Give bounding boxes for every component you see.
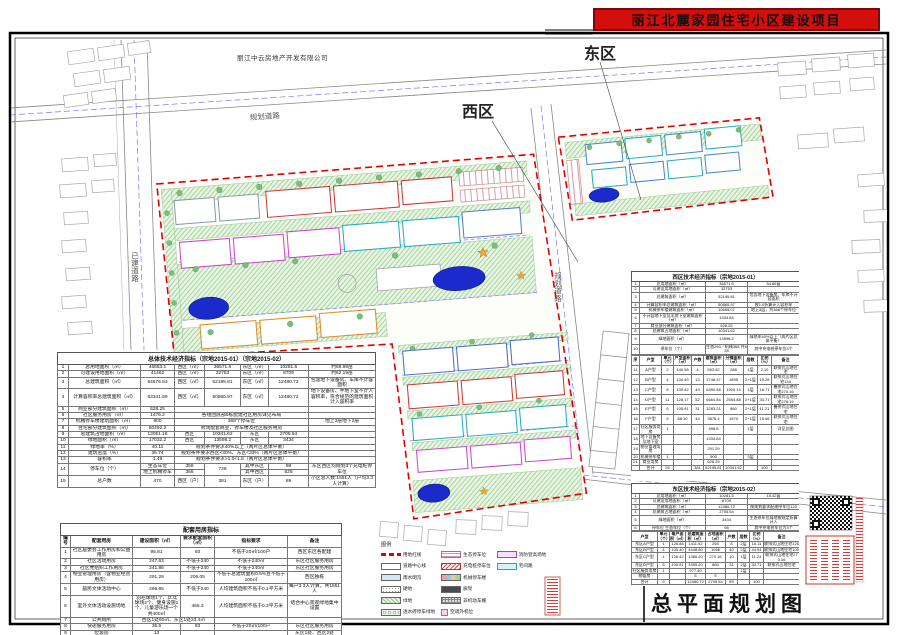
table-cell: 总户数 xyxy=(69,476,141,488)
table-cell: 10 xyxy=(632,344,640,354)
table-cell: 东区（㎡） xyxy=(241,389,269,406)
table-cell: 44.94 xyxy=(750,547,764,552)
table-cell: 东区（㎡） xyxy=(241,377,269,389)
table-cell: 15.46 xyxy=(758,415,772,425)
green-swatch xyxy=(381,597,401,604)
table-cell: 291.29 xyxy=(133,572,181,584)
table-cell: 105.40 xyxy=(670,547,686,552)
table-cell: 1895 xyxy=(724,375,744,385)
table-cell: 绿地率40%以上（两片区总体平衡） xyxy=(748,334,800,344)
west-table-title: 西区技术经济指标（宗地2015-01） xyxy=(632,272,800,282)
table-cell: 按规划要求配建停车位125 xyxy=(748,504,800,509)
table-row: 3总建筑面积（㎡）64676.53西区（㎡）52195.81东区（㎡）12480… xyxy=(58,377,376,389)
east-district xyxy=(558,117,773,221)
table-cell: 东区（㎡） xyxy=(241,371,269,377)
table-cell: 3283.21 xyxy=(704,405,724,415)
table-cell: 1 xyxy=(662,425,674,435)
table-cell: 单元（个） xyxy=(658,532,670,542)
table-cell xyxy=(748,313,800,323)
table-cell: 563.92 xyxy=(704,365,724,375)
table-cell xyxy=(662,435,674,445)
table-cell: 1层 xyxy=(744,385,758,395)
table-cell: 6390.58 xyxy=(704,385,724,395)
table-cell: 东区（㎡） xyxy=(241,365,269,371)
table-row: 3社区党组织工作用房241.86不低于240不低于240㎡东区社区服务用房 xyxy=(61,565,342,571)
table-cell: 12480.72 xyxy=(269,377,309,389)
table-cell: 88.10 xyxy=(674,415,692,425)
table-cell: 18 xyxy=(632,435,640,445)
table-cell: 3434 xyxy=(706,515,748,525)
table-cell xyxy=(632,465,640,470)
table-cell: 不低于240 xyxy=(181,583,215,595)
table-row: 9绿地面积（㎡）13598.2绿地率40%以上（两片区总体平衡） xyxy=(632,334,800,344)
legend-label: 宅间路 xyxy=(519,563,533,569)
table-row: 19物业管理用房291.29 xyxy=(632,445,800,455)
table-cell: 户型 xyxy=(640,355,662,365)
table-cell: 其中充电桩停车位3个 xyxy=(748,344,800,354)
table-cell xyxy=(674,465,692,470)
table-cell: 联排式山地住宅278.19 xyxy=(772,395,800,405)
table-cell xyxy=(674,425,692,435)
table-cell: 6 xyxy=(662,405,674,415)
table-cell xyxy=(692,445,704,455)
project-title-bar: 丽江北麓家园住宅小区建设项目 xyxy=(593,8,880,31)
table-cell: 西区（㎡） xyxy=(175,377,205,389)
legend-label: 生态停车位 xyxy=(463,552,486,558)
table-row: 15E户型6105.91313283.218802+1层11.21叠拼式山地住宅 xyxy=(632,405,800,415)
table-cell: 分摊面积（㎡） xyxy=(724,355,744,365)
support-table-title: 配套用房指标 xyxy=(61,524,342,536)
table-cell: 东区（户） xyxy=(241,476,269,488)
planned-road-label: 规划道路 xyxy=(249,110,280,122)
table-cell: 465.3 xyxy=(181,595,215,617)
legend-label: 透水砖停车绿地 xyxy=(403,609,435,615)
table-cell: 296.65 xyxy=(133,583,181,595)
table-cell: 95.81 xyxy=(133,547,181,559)
legend-label: 绿地 xyxy=(403,598,412,604)
table-row: 12B户型4134.49131748.3718952+1层15.28联排式山地住… xyxy=(632,375,800,385)
table-cell: 1366.20 xyxy=(686,553,706,563)
table-cell: 东区C户型 xyxy=(632,553,658,563)
legend-label: 机械停车楼 xyxy=(463,575,486,581)
legend-label: 硬地 xyxy=(403,586,412,592)
table-cell: 东区D户型 xyxy=(632,563,658,568)
table-cell: 10341.62 xyxy=(724,465,744,470)
west-district-table: 西区技术经济指标（宗地2015-01） 1总用地面积（㎡）36571.654.8… xyxy=(631,271,799,481)
table-cell: 东区西区均规划3个充电桩停车位 xyxy=(309,463,376,476)
table-cell: 联排式山地住宅126 xyxy=(764,542,800,547)
support-facilities-table: 配套用房指标 编号配套用房建设面积（㎡）要求配套面积（㎡）指标要求备注1社区居委… xyxy=(60,523,341,635)
table-cell: 层数 xyxy=(738,532,750,542)
table-cell: 4448.80 xyxy=(686,547,706,552)
table-cell: F户型 xyxy=(640,415,662,425)
table-cell xyxy=(744,465,758,470)
table-cell: 2554.88 xyxy=(724,395,744,405)
table-cell: 50860.97 xyxy=(205,389,241,406)
table-cell: 西区（㎡） xyxy=(175,389,205,406)
table-cell: 不计容地下室及半地下室建筑面积（㎡） xyxy=(640,313,706,323)
developer-label: 丽江中云房地产开发有限公司 xyxy=(237,53,328,62)
table-cell: 4 xyxy=(662,375,674,385)
table-cell: 绿地面积（㎡） xyxy=(640,515,706,525)
table-cell: 比例（%） xyxy=(750,532,764,542)
table-cell: 指标要求 xyxy=(215,536,288,548)
table-row: 14停车位（个）生态车位358726其中东区98东区西区均规划3个充电桩停车位 xyxy=(58,463,376,469)
red-boundary-swatch xyxy=(381,553,401,556)
east-district-table: 东区技术经济指标（宗地2015-02） 1总用地面积（㎡）10281.515.4… xyxy=(631,483,799,586)
table-cell: 联排式山地住宅134 xyxy=(772,375,800,385)
table-cell: 49 xyxy=(692,385,704,395)
table-cell: 人均建筑面积不低于0.1平方米 xyxy=(215,583,288,595)
table-cell: 物业管理用房 xyxy=(640,445,662,455)
table-cell: 44 xyxy=(692,415,704,425)
table-row: 6停车位 生态车位（个）98其中充电桩车位为3个 xyxy=(632,525,800,530)
drawing-sheet: 丽江中云房地产开发有限公司 西区 东区 规划道路 已建道路 规划道路 xyxy=(0,0,900,635)
table-cell: 计算容积率总建筑面积（㎡） xyxy=(69,389,141,406)
table-cell: 100 xyxy=(750,579,764,584)
table-row: 3总建筑面积（㎡）52195.81包含地下设备房、车库不计容面积 xyxy=(632,292,800,302)
table-cell: 比例（%） xyxy=(758,355,772,365)
legend-label: 雨水明沟 xyxy=(403,575,421,581)
permeable-green-swatch xyxy=(381,609,401,616)
legend-label: 空调外机位 xyxy=(450,609,473,615)
table-cell: 生态260／机械368 共628 xyxy=(706,344,748,354)
legend-label: 非机动车棚 xyxy=(463,598,486,604)
table-cell: 建设面积（㎡） xyxy=(133,536,181,548)
legend-title: 图例 xyxy=(381,541,583,548)
table-cell: 2.10 xyxy=(758,365,772,375)
mech-parking-swatch xyxy=(441,574,461,581)
table-cell: 11 xyxy=(662,395,674,405)
table-cell: 12 xyxy=(632,375,640,385)
table-cell: 64676.53 xyxy=(141,377,175,389)
existing-road-label: 已建道路 xyxy=(130,252,139,282)
table-cell: 9 xyxy=(632,334,640,344)
legend-label: 道路中心线 xyxy=(403,563,426,569)
table-cell: 垃圾房 xyxy=(71,630,133,635)
table-cell xyxy=(772,435,800,445)
table-cell: 不低于总建筑面积0.5%且不低于100㎡ xyxy=(215,572,288,584)
table-cell: 小区总人数:1551人（户均3.3人计算） xyxy=(309,476,376,488)
table-cell: 层数 xyxy=(744,355,758,365)
table-cell xyxy=(724,445,744,455)
table-cell: 11.21 xyxy=(758,405,772,415)
table-cell xyxy=(744,445,758,455)
table-cell: 10 xyxy=(726,553,738,563)
road-centerline-swatch xyxy=(381,563,401,570)
table-cell: 西区东区各配建 xyxy=(288,547,342,559)
table-cell: 726 xyxy=(205,463,241,476)
ac-unit-swatch xyxy=(441,609,448,616)
table-cell: A户型 xyxy=(640,365,662,375)
table-cell: E户型 xyxy=(640,405,662,415)
table-row: 东区C户型1126.421366.20270.16101层11.24联排式山地住… xyxy=(632,553,800,563)
table-cell: 合计 xyxy=(640,465,662,470)
table-cell: 1570 xyxy=(724,415,744,425)
table-cell: 6664.84 xyxy=(704,395,724,405)
table-cell: 联排式山地住宅 xyxy=(772,365,800,375)
table-cell: 52 xyxy=(692,395,704,405)
table-cell: 6 xyxy=(632,313,640,323)
legend-label: 廊架 xyxy=(463,586,472,592)
east-district-label: 东区 xyxy=(584,44,616,63)
table-cell: 2+1层 xyxy=(744,415,758,425)
table-cell: 89 xyxy=(269,476,309,488)
table-cell: 详见总图 xyxy=(772,425,800,435)
table-row: 合计912480.722705.5489100 xyxy=(632,579,800,584)
table-cell: 4 xyxy=(58,389,69,406)
table-cell: 2705.54 xyxy=(706,579,726,584)
table-cell: 100 xyxy=(758,465,772,470)
table-cell: 东区社区服务用房 xyxy=(288,624,342,630)
table-cell: 单元（个） xyxy=(662,355,674,365)
table-cell: 17 xyxy=(632,425,640,435)
table-row: 户型单元（个）每户面积（㎡）总建筑面积（㎡）占地面积（㎡）户数层数比例（%）备注 xyxy=(632,532,800,542)
table-cell: 商业用房 xyxy=(640,460,662,465)
table-cell: 东区B户型 xyxy=(632,547,658,552)
table-cell: 14 xyxy=(58,463,69,476)
legend-item: 透水砖停车绿地 xyxy=(381,607,435,619)
table-cell: 联排式山地住宅105 xyxy=(764,547,800,552)
table-cell: 291.29 xyxy=(704,445,724,455)
table-cell: 规划条件要求西区<30%、东区<33%（两片区总体平衡） xyxy=(175,451,309,457)
table-cell: 1334.84 xyxy=(704,435,724,445)
table-cell: 880 xyxy=(724,405,744,415)
table-cell: 16.71 xyxy=(758,385,772,395)
table-cell: 4 xyxy=(61,572,71,584)
table-cell: 配套用房 xyxy=(71,536,133,548)
table-cell: 1层 xyxy=(744,365,758,375)
table-row: 16F户型588.10443876.415702+1层15.46联排式山地住宅 xyxy=(632,415,800,425)
table-cell: C户型 xyxy=(640,385,662,395)
table-cell: 13 xyxy=(133,630,181,635)
table-cell xyxy=(738,579,750,584)
table-cell: 联排式山地住宅 xyxy=(772,415,800,425)
table-cell: 东区1处、西区2处 xyxy=(288,630,342,635)
table-cell: 8 xyxy=(662,385,674,395)
east-table-title: 东区技术经济指标（宗地2015-02） xyxy=(632,484,800,494)
table-cell: 52195.81 xyxy=(205,377,241,389)
table-cell xyxy=(724,425,744,435)
table-cell: 105.91 xyxy=(670,563,686,568)
legend-item: 道路中心线 xyxy=(381,561,435,573)
table-cell: 3876.4 xyxy=(704,415,724,425)
table-cell: B户型 xyxy=(640,375,662,385)
table-cell xyxy=(692,425,704,435)
table-cell: 1 xyxy=(61,547,71,559)
table-cell: 33.71 xyxy=(750,563,764,568)
table-cell: 户数 xyxy=(726,532,738,542)
legend-item: 绿地 xyxy=(381,595,435,607)
table-cell: 备注 xyxy=(772,355,800,365)
legend-item: 机械停车楼 xyxy=(441,572,491,584)
table-cell: 户型 xyxy=(632,532,658,542)
table-cell: 89 xyxy=(726,579,738,584)
table-cell: 11 xyxy=(632,365,640,375)
table-cell: 总建筑面积（㎡） xyxy=(686,532,706,542)
table-cell xyxy=(772,465,800,470)
legend-item: 非机动车棚 xyxy=(441,595,491,607)
table-cell: D户型 xyxy=(640,395,662,405)
table-cell xyxy=(215,630,288,635)
table-cell: 52195.81 xyxy=(706,292,748,302)
table-row: 14D户型11128.17526664.842554.882+1层33.71联排… xyxy=(632,395,800,405)
table-cell: 社区居委会工作用房和公益用房 xyxy=(71,547,133,559)
legend-item: 生态停车位 xyxy=(441,549,491,561)
table-cell: 占地面积（㎡） xyxy=(706,532,726,542)
table-cell: 结合中心景观绿地集中设置 xyxy=(288,595,342,617)
planned-road-vertical-label: 规划道路 xyxy=(553,271,562,303)
table-cell: 机械停车楼 xyxy=(640,454,662,459)
legend-item: 硬地 xyxy=(381,584,435,596)
table-cell: 户型面积（㎡） xyxy=(674,355,692,365)
table-cell: 停车位（个） xyxy=(640,344,706,354)
table-cell xyxy=(670,579,686,584)
overall-table-title: 总体技术经济指标（宗地2015-01）（宗地2015-02） xyxy=(58,353,376,365)
table-cell: 1920.14 xyxy=(724,385,744,395)
table-cell: 13 xyxy=(632,385,640,395)
table-cell: 15 xyxy=(58,476,69,488)
table-cell: 498.8 xyxy=(704,425,724,435)
table-cell: 63341.69 xyxy=(141,389,175,406)
table-cell: 1411.52 xyxy=(686,542,706,547)
table-cell: 1748.37 xyxy=(704,375,724,385)
table-cell: 序 xyxy=(632,355,640,365)
table-cell xyxy=(181,630,215,635)
project-title: 丽江北麓家园住宅小区建设项目 xyxy=(631,10,841,29)
table-cell: 社区服务用房 xyxy=(640,425,662,435)
table-cell: 人均建筑面积不低于0.3平方米 xyxy=(215,595,288,617)
table-cell: 西区（户） xyxy=(175,476,205,488)
table-cell: 要求配套面积（㎡） xyxy=(181,536,215,548)
table-row: 5居民文体活动中心296.65不低于240人均建筑面积不低于0.1平方米每户3.… xyxy=(61,583,342,595)
table-cell: 126.42 xyxy=(670,553,686,563)
table-cell: 羽毛球场1个、乒乓球场2个、健身设施1个、儿童游乐场一个共400㎡ xyxy=(133,595,181,617)
table-cell: 12480.72 xyxy=(269,389,309,406)
table-cell: 3 xyxy=(58,377,69,389)
table-cell xyxy=(692,435,704,445)
overall-indicators-table: 总体技术经济指标（宗地2015-01）（宗地2015-02） 1总用地面积（㎡）… xyxy=(57,352,375,488)
table-cell: 9 xyxy=(658,579,670,584)
table-cell: 西区1处60㎡、东区1处23.4㎡ xyxy=(133,618,215,624)
table-cell xyxy=(764,579,800,584)
table-row: 4物业管理用房（含物业经营用房）291.29206.05不低于总建筑面积0.5%… xyxy=(61,572,342,584)
table-row: 6室外文体活动设施场地羽毛球场1个、乒乓球场2个、健身设施1个、儿童游乐场一个共… xyxy=(61,595,342,617)
table-row: 13C户型8130.42496390.581920.141层16.71叠拼式山地… xyxy=(632,385,800,395)
table-row: 18地下设备房及地下室1334.84 xyxy=(632,435,800,445)
table-row: 编号配套用房建设面积（㎡）要求配套面积（㎡）指标要求备注 xyxy=(61,536,342,548)
table-cell: 居民文体活动中心 xyxy=(71,583,133,595)
table-row: 9垃圾房13东区1处、西区2处 xyxy=(61,630,342,635)
lane-swatch xyxy=(497,563,517,570)
table-cell: 470 xyxy=(141,476,175,488)
charging-parking-swatch xyxy=(441,563,461,570)
table-cell: 6 xyxy=(61,595,71,617)
table-cell: 西区（㎡） xyxy=(175,371,205,377)
table-cell: 西区独栋 xyxy=(288,572,342,584)
table-cell: 1334.84 xyxy=(706,313,748,323)
table-cell xyxy=(724,435,744,445)
table-cell: 其中充电桩车位为3个 xyxy=(748,525,800,530)
table-cell: 5 xyxy=(61,583,71,595)
table-cell: 机械停车楼建筑面积（㎡） xyxy=(640,308,706,313)
table-row: 5绿地面积（㎡）3434生态停车位绿地按规定折算计入 xyxy=(632,515,800,525)
bike-shed-swatch xyxy=(441,597,461,604)
table-cell: 包含地下设备房、车库不计容面积 xyxy=(309,377,376,389)
table-cell: 6 xyxy=(632,525,640,530)
table-cell: 绿地面积（㎡） xyxy=(640,334,706,344)
table-cell: 13 xyxy=(692,375,704,385)
table-cell: 1层 xyxy=(738,553,750,563)
table-cell: 26 xyxy=(662,465,674,470)
table-cell: 126.88 xyxy=(670,542,686,547)
table-cell: 不低于20㎡/100户 xyxy=(215,547,288,559)
table-row: 2社区活动用房247.63不低于240不低于240㎡东区社区服务用房 xyxy=(61,559,342,565)
table-cell: 东区社区服务用房 xyxy=(288,559,342,565)
table-row: 4计算容积率总建筑面积（㎡）63341.69西区（㎡）50860.97东区（㎡）… xyxy=(58,389,376,406)
table-cell: 15.28 xyxy=(758,375,772,385)
legend-column-2: 生态停车位 充电桩停车位 机械停车楼 廊架 非机动车棚 空调外机位 xyxy=(441,549,491,618)
eco-parking-swatch xyxy=(441,551,461,558)
table-cell: 包含地下设备房、车库不计容面积 xyxy=(748,292,800,302)
legend-column-3: 消防登高场地 宅间路 xyxy=(497,549,547,618)
table-cell: 每户面积（㎡） xyxy=(670,532,686,542)
table-cell xyxy=(662,445,674,455)
table-cell: 3395.20 xyxy=(686,563,706,568)
table-row: 17社区服务用房1498.81层详见总图 xyxy=(632,425,800,435)
table-cell: 生态停车位绿地按规定折算计入 xyxy=(748,515,800,525)
table-cell: 商业部分建筑面积（㎡） xyxy=(69,406,141,412)
table-cell: 13598.2 xyxy=(706,334,748,344)
table-cell: 15 xyxy=(632,405,640,415)
drawing-title: 总平面规划图 xyxy=(651,588,831,618)
table-row: 合计2638152195.8110341.62100 xyxy=(632,465,800,470)
table-cell: 东区社区服务用房 xyxy=(288,565,342,571)
table-cell xyxy=(744,435,758,445)
table-cell: 物业管理用房（含物业经营用房） xyxy=(71,572,133,584)
table-cell: 31 xyxy=(692,405,704,415)
table-cell: 计算容积率总建筑面积（㎡） xyxy=(640,302,706,307)
table-row: 11A户型2140.984563.922881层2.10联排式山地住宅 xyxy=(632,365,800,375)
table-cell: 备注 xyxy=(288,536,342,548)
table-cell: 19 xyxy=(632,445,640,455)
table-cell xyxy=(758,445,772,455)
table-cell: 4 xyxy=(692,365,704,375)
table-cell: 室外文体活动设施场地 xyxy=(71,595,133,617)
table-cell: 总建筑面积（㎡） xyxy=(640,292,706,302)
table-cell: 联排式山地住宅270.16 xyxy=(764,553,800,563)
legend-item: 空调外机位 xyxy=(441,607,491,619)
west-district-label: 西区 xyxy=(462,103,494,121)
table-cell: 机械停车楼建筑面积（㎡） xyxy=(69,419,141,425)
table-cell: 按1.0折算计入容积率 xyxy=(748,302,800,307)
fire-access-swatch xyxy=(497,551,517,558)
table-cell xyxy=(674,435,692,445)
table-row: 1社区居委会工作用房和公益用房95.8193不低于20㎡/100户西区东区各配建 xyxy=(61,547,342,559)
drain-swatch xyxy=(381,574,401,581)
table-cell: 381 xyxy=(205,476,241,488)
table-cell: 地下设备房及地下室 xyxy=(640,435,662,445)
table-cell: 合计 xyxy=(632,579,658,584)
table-cell: 2 xyxy=(662,365,674,375)
legend-label: 消防登高场地 xyxy=(519,552,547,558)
table-cell: 总建筑面积（㎡） xyxy=(69,377,141,389)
table-cell: 52195.81 xyxy=(704,465,724,470)
table-cell: 270.16 xyxy=(706,553,726,563)
table-cell: 134.49 xyxy=(674,375,692,385)
table-cell: 叠拼式山地住宅 xyxy=(772,405,800,415)
gallery-swatch xyxy=(441,586,461,593)
